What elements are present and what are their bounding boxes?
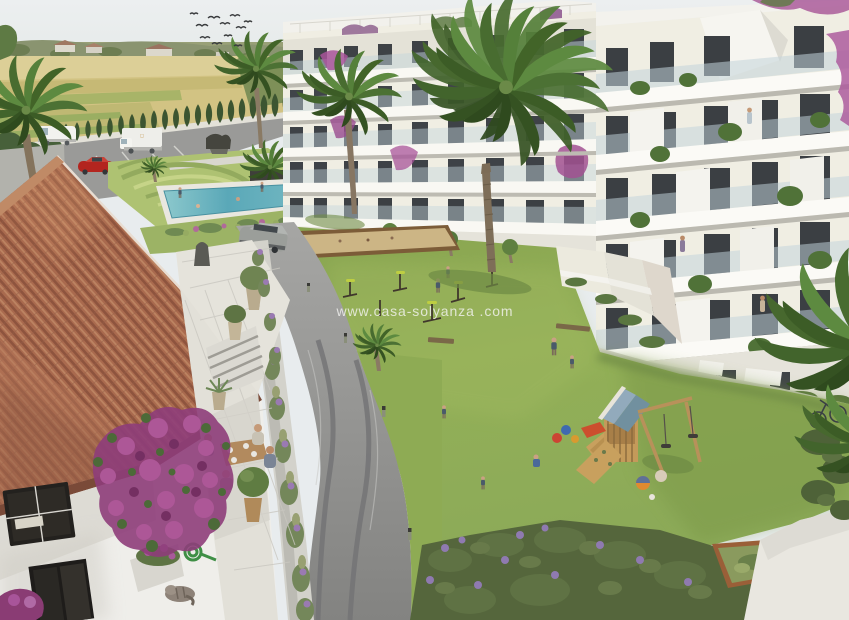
svg-text:◻: ◻ (140, 133, 144, 139)
svg-text:www.casa-solyanza .com: www.casa-solyanza .com (336, 303, 514, 319)
